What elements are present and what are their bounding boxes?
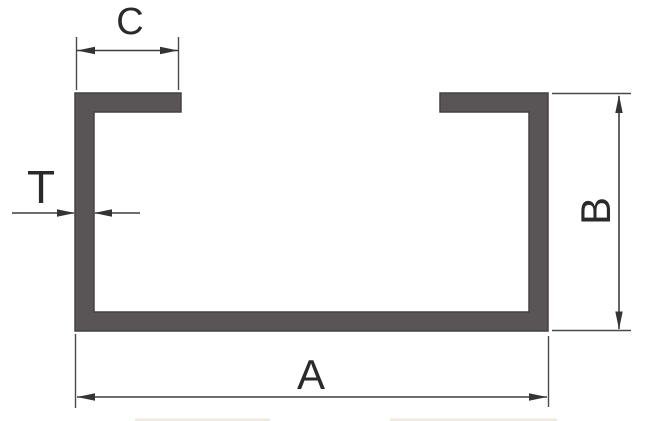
- dimension-b-arrow-up-icon: [615, 95, 622, 113]
- dimension-c-arrow-left-icon: [77, 47, 95, 54]
- dimension-t-arrow-left-icon: [94, 209, 112, 216]
- dimension-label-c: C: [101, 1, 159, 43]
- dimension-a-arrow-right-icon: [529, 393, 547, 400]
- c-channel-technical-drawing: C T B A: [0, 0, 648, 421]
- c-channel-profile-shape: [75, 93, 548, 331]
- dimension-c: [77, 37, 179, 90]
- dimension-label-t: T: [12, 163, 70, 211]
- dimension-a-arrow-left-icon: [77, 393, 95, 400]
- dimension-label-b: B: [571, 176, 621, 246]
- dimension-b-arrow-down-icon: [615, 312, 622, 330]
- dimension-label-a: A: [276, 351, 346, 399]
- dimension-c-arrow-right-icon: [160, 47, 178, 54]
